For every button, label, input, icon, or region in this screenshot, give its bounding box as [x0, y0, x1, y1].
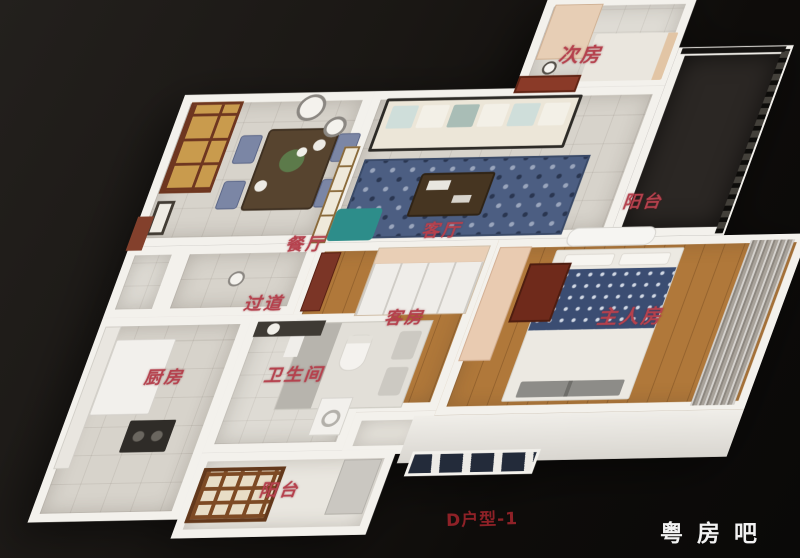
exterior-window-strip	[404, 449, 541, 476]
sofa-pillow	[476, 104, 511, 127]
toilet-tank	[347, 335, 374, 343]
room-label-bathroom: 卫生间	[261, 361, 330, 387]
sofa-pillow	[506, 103, 541, 126]
bathroom-vanity	[253, 320, 327, 337]
sofa	[368, 95, 584, 152]
book	[451, 195, 472, 203]
sink	[265, 323, 281, 335]
sofa-pillow	[415, 105, 450, 128]
washer-door	[319, 410, 343, 427]
watermark: 粤房吧	[660, 514, 771, 548]
scene: 餐厅 客厅 次房 阳台 过道 客房 主人房 厨房 卫生间 阳台 D户型-1 粤房…	[0, 0, 800, 558]
tray	[426, 180, 452, 190]
bed-pillow	[377, 367, 410, 396]
living-room-door	[513, 75, 581, 93]
room-label-master-bedroom: 主人房	[594, 301, 670, 330]
ac-unit	[564, 226, 659, 247]
unit-label: D户型-1	[446, 504, 519, 531]
bed-pillow	[390, 331, 423, 360]
bed-pillow	[618, 252, 673, 265]
sofa-pillow	[385, 105, 420, 128]
bed-bench	[515, 379, 625, 397]
sofa-pillow	[537, 102, 572, 125]
sofa-pillow	[446, 104, 481, 127]
